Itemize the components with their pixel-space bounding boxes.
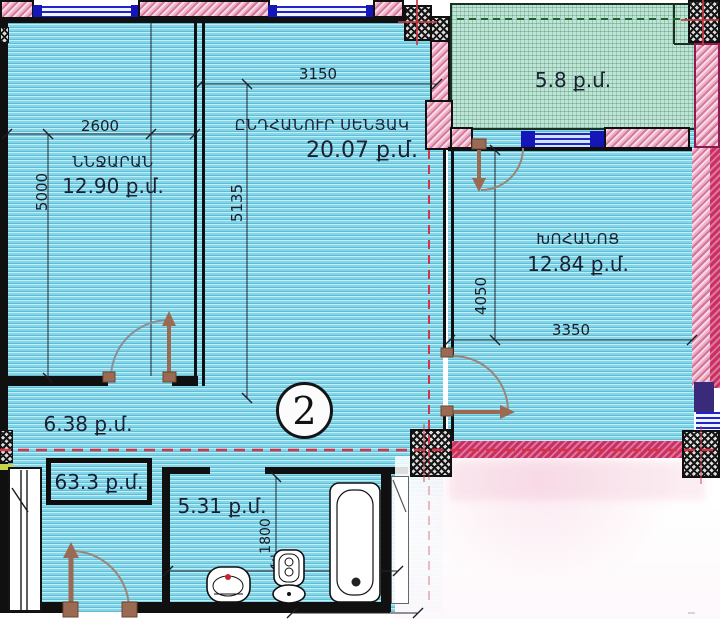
- unit-number-badge: 2: [276, 382, 333, 439]
- column: [410, 429, 452, 477]
- faded-tint: [450, 462, 705, 500]
- dim-4050: 4050: [472, 266, 490, 326]
- dim-3350: 3350: [531, 321, 611, 339]
- wall-bath-right: [381, 473, 391, 612]
- balcony-area: 5.8 ք.մ.: [503, 70, 643, 91]
- hallway-area: 6.38 ք.մ.: [18, 414, 158, 435]
- column: [688, 0, 720, 43]
- total-area-box: 63.3 ք.մ.: [46, 458, 152, 505]
- column: [682, 430, 720, 478]
- wall-left: [0, 20, 8, 612]
- wall-kitchen-right: [692, 148, 710, 388]
- wall-bedroom-living: [194, 18, 205, 386]
- wall-kitchen-bottom: [452, 441, 682, 458]
- wardrobe: [8, 467, 42, 612]
- wall-living-kitchen: [443, 148, 454, 356]
- kitchen-name: ԽՈՀԱՆՈՑ: [498, 232, 658, 248]
- dim-3150: 3150: [278, 65, 358, 83]
- column: [404, 5, 432, 41]
- wall-top: [0, 17, 432, 23]
- dim-2600: 2600: [60, 117, 140, 135]
- living-area: 20.07 ք.մ.: [262, 139, 462, 162]
- kitchen-area: 12.84 ք.մ.: [498, 254, 658, 275]
- wall-pier: [373, 0, 404, 18]
- dim-5000: 5000: [33, 162, 51, 222]
- living-name: ԸՆԴՀԱՆՈՒՐ ՍԵՆՅԱԿ: [222, 118, 422, 134]
- balcony-floor: [450, 3, 696, 130]
- wall-pier: [138, 0, 270, 18]
- bedroom-name: ՆՆՋԱՐԱՆ: [28, 155, 198, 171]
- dim-5135: 5135: [228, 173, 246, 233]
- column: [0, 27, 9, 43]
- wall-kitchen-right-edge: [710, 148, 720, 388]
- wall-bedroom-south: [172, 376, 198, 386]
- wall-bottom: [137, 602, 390, 613]
- total-area-label: 63.3 ք.մ.: [54, 470, 143, 494]
- wall-kitchen-top: [448, 147, 692, 151]
- dim-3000: 3000: [247, 554, 327, 570]
- wall-bedroom-south: [7, 376, 108, 386]
- unit-number: 2: [292, 389, 316, 433]
- wall-block-indigo: [694, 382, 714, 412]
- column: [0, 430, 13, 463]
- wall-bath-left: [162, 467, 170, 612]
- floor-plan: 63.3 ք.մ. ՆՆՋԱՐԱՆ 12.90 ք.մ. ԸՆԴՀԱՆՈՒՐ Ս…: [0, 0, 720, 619]
- door-frame: [391, 476, 409, 604]
- apartment-floor: [8, 20, 443, 612]
- wall-balcony-right: [694, 43, 720, 148]
- wall-bath-top: [162, 467, 210, 474]
- column: [430, 16, 450, 42]
- bedroom-area: 12.90 ք.մ.: [28, 176, 198, 197]
